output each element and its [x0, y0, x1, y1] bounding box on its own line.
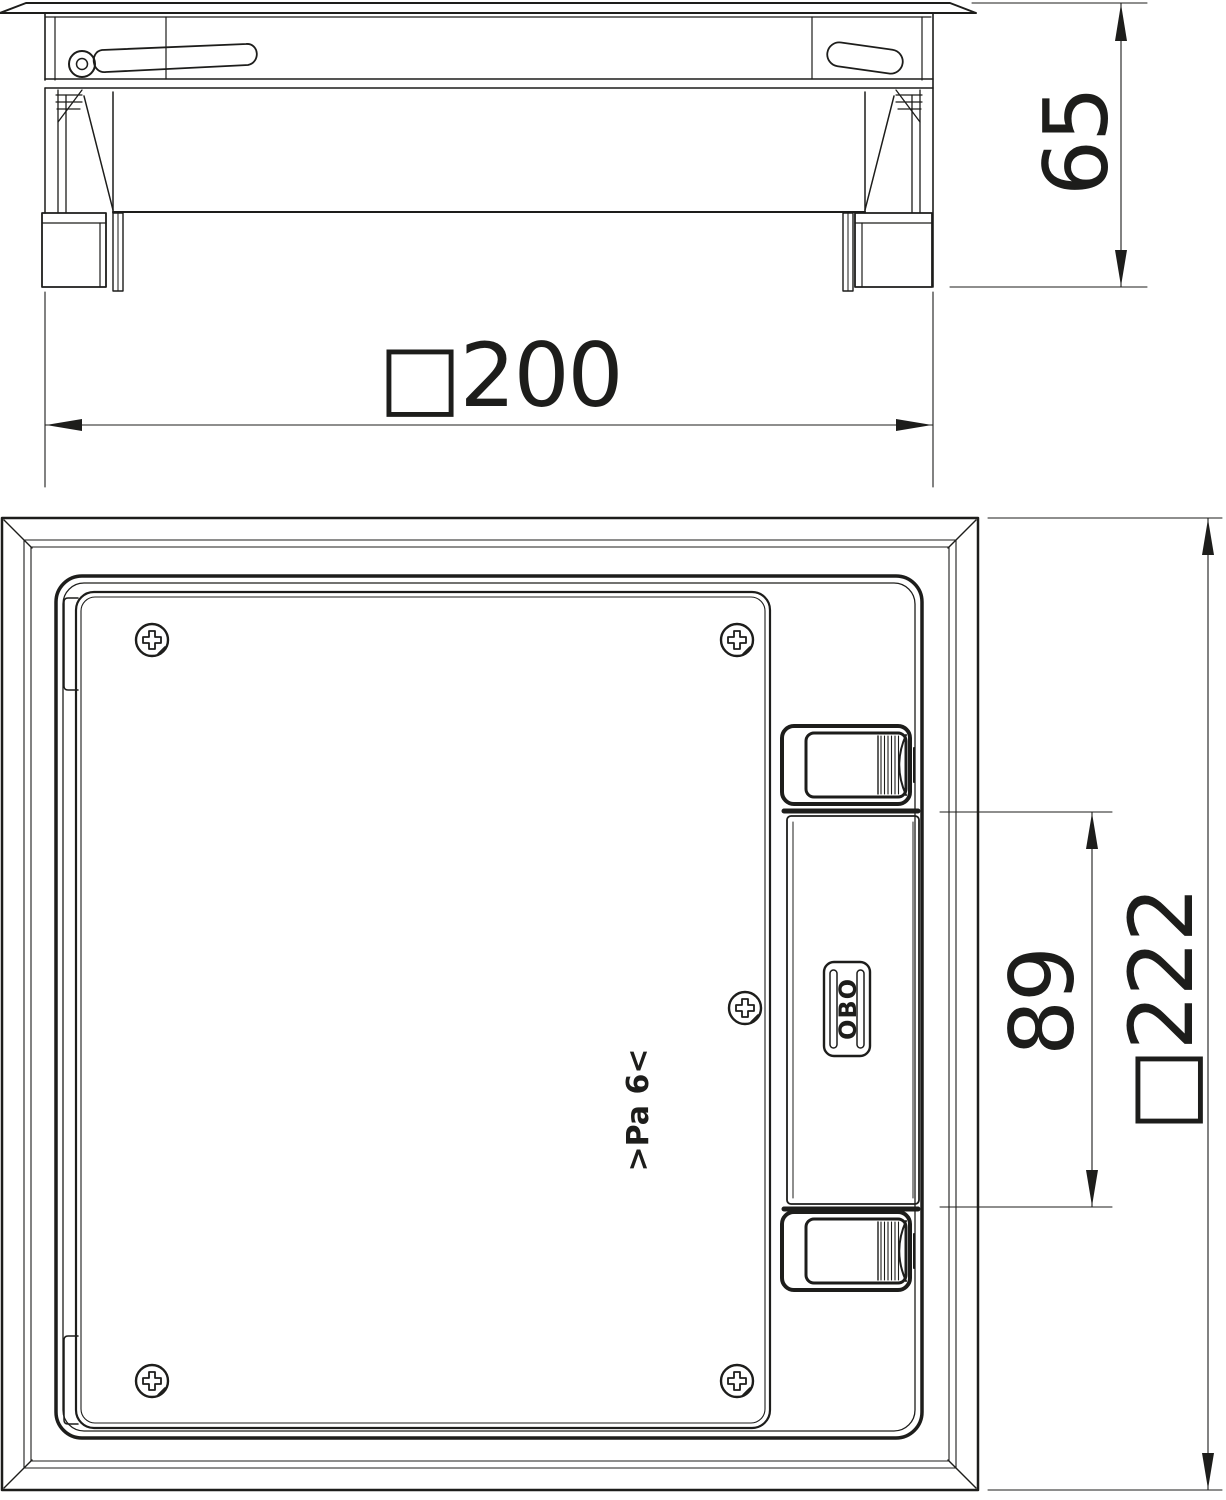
mounting-claw-right	[865, 90, 922, 213]
arrowhead-up-icon	[1202, 519, 1214, 555]
screw-bottom-right	[721, 1365, 753, 1397]
grip-hatch-icon	[881, 736, 899, 794]
screw-top-left	[136, 624, 168, 656]
trim-frame	[56, 576, 922, 1438]
phillips-cross-icon	[143, 631, 161, 649]
screw-bottom-left	[136, 1365, 168, 1397]
handle-lever-left	[69, 44, 257, 77]
obo-logo-badge: OBO	[824, 962, 870, 1056]
screw-center	[729, 992, 761, 1024]
arrowhead-up-icon	[1086, 813, 1098, 849]
dimension-label-89: 89	[991, 948, 1094, 1056]
dimension-89: 89	[940, 812, 1112, 1207]
phillips-cross-icon	[143, 1372, 161, 1390]
obo-logo-text: OBO	[834, 978, 862, 1040]
latch-bottom	[782, 1212, 914, 1290]
service-panel: OBO	[787, 816, 919, 1204]
arrowhead-right-icon	[896, 419, 932, 431]
arrowhead-up-icon	[1115, 4, 1127, 41]
arrowhead-down-icon	[1115, 250, 1127, 286]
phillips-cross-icon	[728, 631, 746, 649]
dimension-200: □200	[45, 292, 933, 487]
screw-top-right	[721, 624, 753, 656]
plan-view: >Pa 6<	[2, 518, 978, 1490]
cover-plate	[64, 592, 770, 1428]
side-view	[0, 3, 976, 291]
dimension-label-222: □222	[1110, 888, 1213, 1131]
dimension-label-200: □200	[378, 324, 621, 427]
handle-slot-right	[826, 41, 905, 75]
mounting-claw-left	[45, 88, 113, 213]
floor-box-technical-drawing: 65 □200	[0, 0, 1226, 1500]
phillips-cross-icon	[736, 999, 754, 1017]
foot-left	[42, 213, 123, 291]
grip-hatch-icon	[881, 1222, 899, 1280]
foot-right	[843, 213, 932, 291]
latch-top	[782, 726, 914, 804]
material-marking: >Pa 6<	[621, 1048, 656, 1171]
outer-frame	[2, 518, 978, 1490]
arrowhead-down-icon	[1086, 1170, 1098, 1206]
flange-plate	[0, 3, 976, 13]
technical-drawing-page: 65 □200	[0, 0, 1226, 1500]
dimension-65: 65	[950, 3, 1147, 287]
arrowhead-down-icon	[1202, 1453, 1214, 1489]
arrowhead-left-icon	[46, 419, 82, 431]
dimension-label-65: 65	[1025, 88, 1128, 196]
phillips-cross-icon	[728, 1372, 746, 1390]
